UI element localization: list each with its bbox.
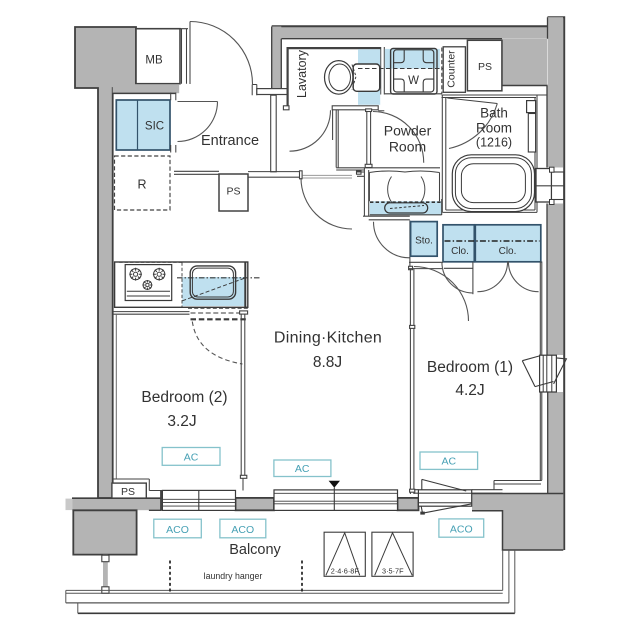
svg-text:SIC: SIC: [145, 121, 164, 133]
svg-text:ACO: ACO: [450, 524, 473, 536]
svg-text:PS: PS: [478, 61, 492, 73]
svg-text:Bedroom (1): Bedroom (1): [427, 359, 513, 376]
svg-text:ACO: ACO: [231, 524, 254, 536]
svg-text:Room: Room: [476, 121, 512, 136]
svg-text:MB: MB: [145, 55, 163, 67]
svg-text:ACO: ACO: [166, 524, 189, 536]
svg-text:AC: AC: [295, 463, 310, 475]
svg-text:laundry hanger: laundry hanger: [204, 571, 263, 581]
svg-text:2·4·6·8F: 2·4·6·8F: [331, 567, 360, 576]
svg-text:Lavatory: Lavatory: [295, 49, 309, 98]
svg-text:PS: PS: [226, 186, 240, 198]
svg-text:8.8J: 8.8J: [313, 354, 342, 371]
svg-text:Room: Room: [389, 139, 426, 155]
svg-text:W: W: [408, 75, 419, 87]
svg-text:Bedroom (2): Bedroom (2): [141, 389, 227, 406]
svg-text:AC: AC: [442, 456, 457, 468]
svg-text:Counter: Counter: [446, 50, 458, 88]
svg-text:3.2J: 3.2J: [167, 413, 196, 430]
svg-text:Clo.: Clo.: [451, 246, 469, 257]
svg-text:4.2J: 4.2J: [455, 382, 484, 399]
svg-text:3·5·7F: 3·5·7F: [382, 567, 404, 576]
svg-text:AC: AC: [184, 452, 199, 464]
svg-text:Powder: Powder: [384, 123, 432, 139]
svg-text:PS: PS: [121, 486, 135, 498]
svg-text:Clo.: Clo.: [499, 246, 517, 257]
svg-text:Balcony: Balcony: [229, 542, 281, 558]
svg-text:Sto.: Sto.: [415, 236, 433, 247]
svg-text:Dining·Kitchen: Dining·Kitchen: [274, 330, 382, 347]
svg-text:Bath: Bath: [480, 106, 508, 121]
svg-text:(1216): (1216): [476, 136, 512, 150]
svg-text:R: R: [137, 178, 146, 192]
svg-text:Entrance: Entrance: [201, 133, 259, 149]
